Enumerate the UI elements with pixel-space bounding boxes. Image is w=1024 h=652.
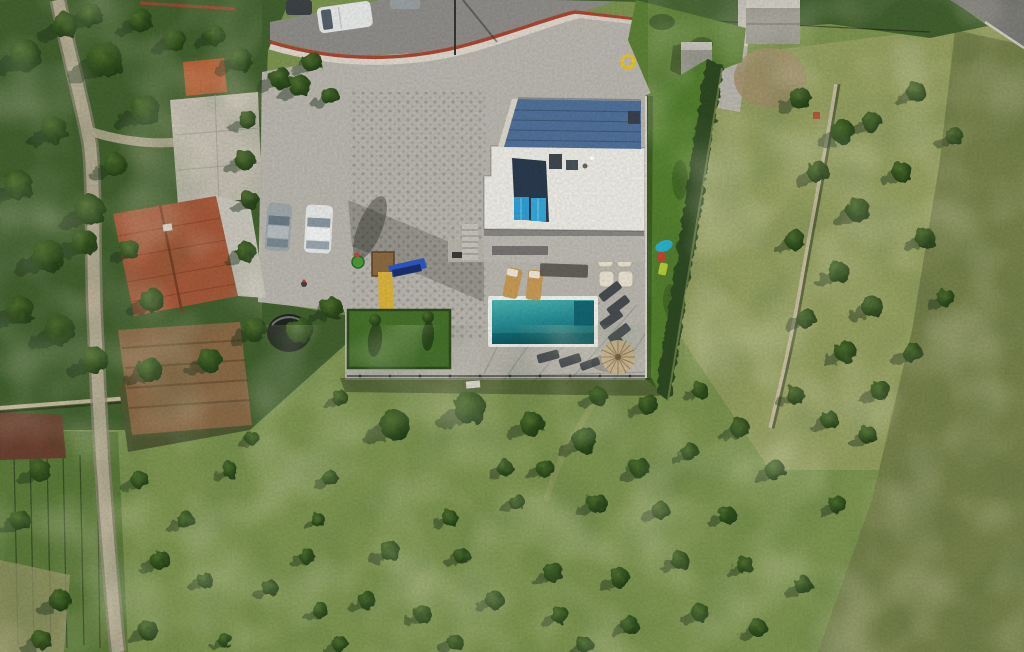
- photo-grain: [0, 0, 1024, 652]
- scene-svg: [0, 0, 1024, 652]
- aerial-photo: Aerial drone photograph, top-down view: …: [0, 0, 1024, 652]
